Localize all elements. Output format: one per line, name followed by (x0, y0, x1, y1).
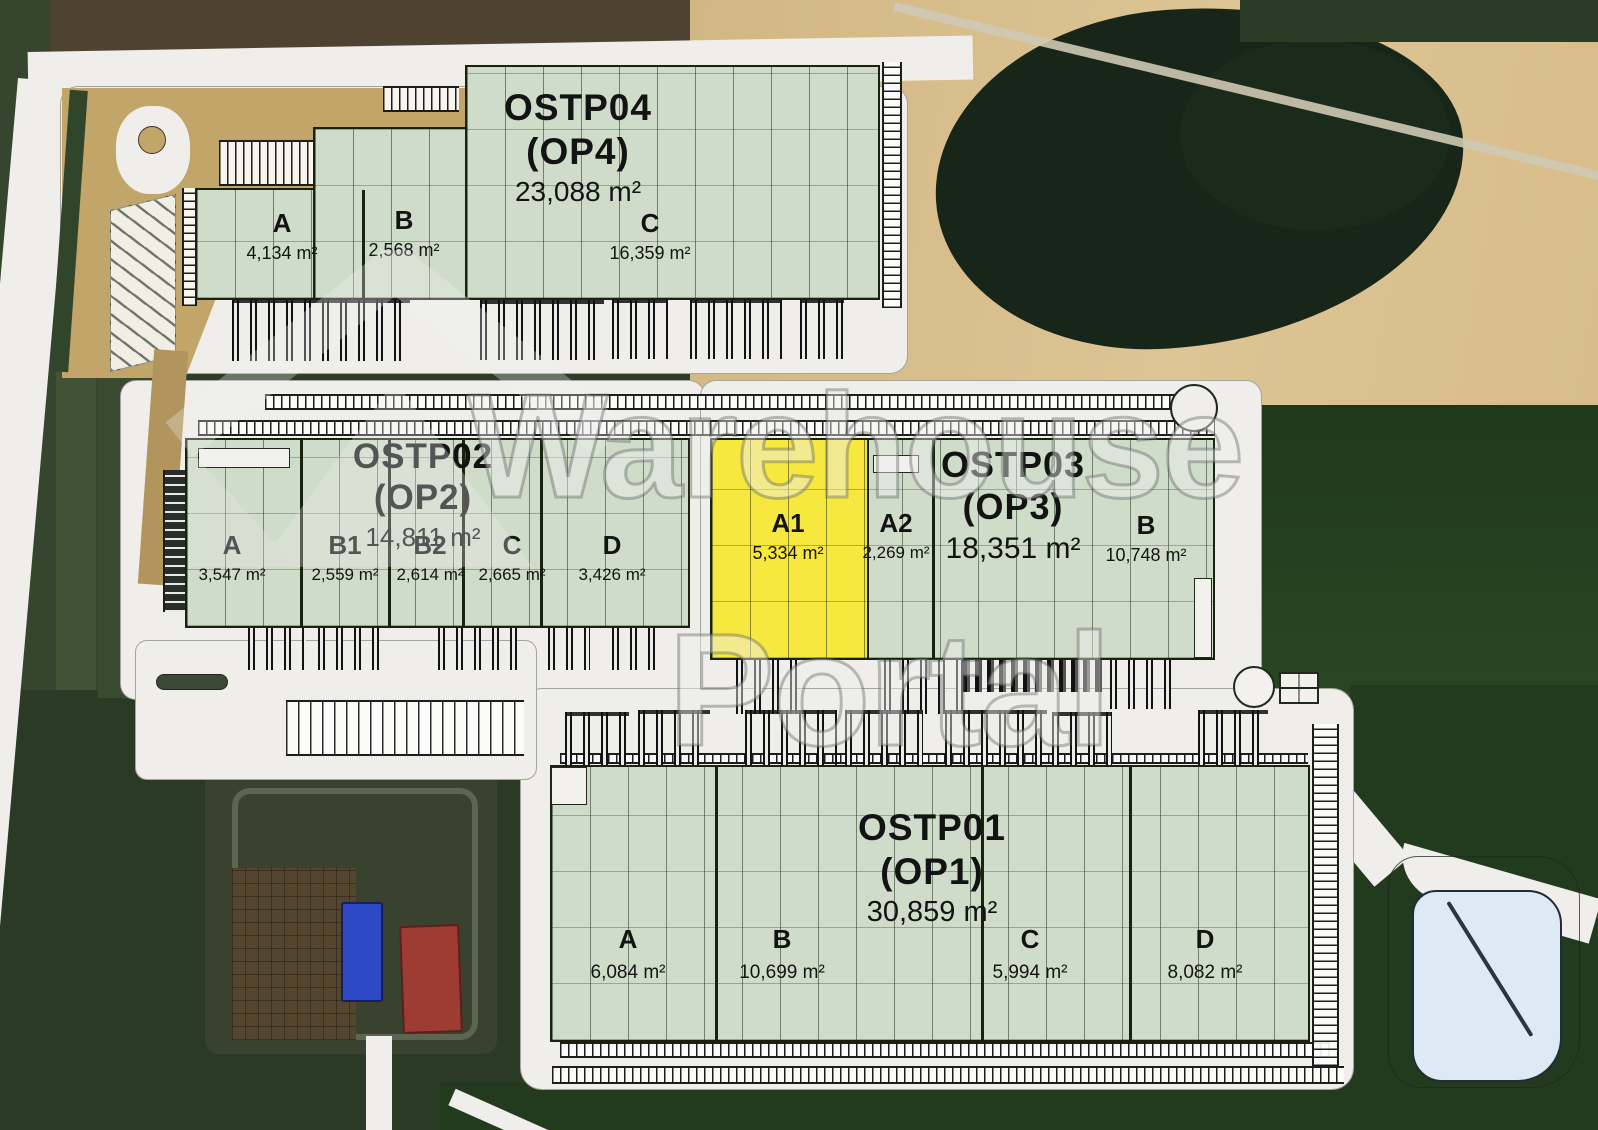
substation-red-building (399, 924, 463, 1034)
truck-row (690, 299, 782, 359)
watermark-line-1: Warehouse (468, 362, 1242, 532)
truck-row (565, 712, 629, 766)
building-title-ostp01: OSTP01 (OP1) 30,859 m² (752, 806, 1112, 929)
parcel-circle (138, 126, 166, 154)
section-label[interactable]: C 5,994 m² (993, 926, 1068, 984)
parking-stalls (552, 1066, 1344, 1084)
parking-stalls (882, 62, 902, 308)
building-code: (OP1) (752, 850, 1112, 894)
water-tank (1233, 666, 1275, 708)
section-label[interactable]: A 6,084 m² (591, 926, 666, 984)
parking-stalls (1312, 724, 1339, 1066)
building-name: OSTP04 (398, 86, 758, 130)
watermark-line-2: Portal (668, 598, 1109, 782)
parking-island (156, 674, 228, 690)
substation-blue-building (341, 902, 383, 1002)
retention-pond (1412, 890, 1562, 1082)
interior-room (551, 767, 587, 805)
dock-stalls (219, 140, 313, 186)
section-divider (1129, 767, 1132, 1040)
trees-top-right (1240, 0, 1598, 42)
section-label[interactable]: B 10,699 m² (739, 926, 825, 984)
substation-gravel-grid (232, 868, 356, 1040)
section-label[interactable]: D 8,082 m² (1168, 926, 1243, 984)
site-plan-canvas: OSTP04 (OP4) 23,088 m² A 4,134 m² B 2,56… (0, 0, 1598, 1130)
building-code: (OP4) (398, 130, 758, 174)
building-title-ostp04: OSTP04 (OP4) 23,088 m² (398, 86, 758, 208)
building-name: OSTP01 (752, 806, 1112, 850)
section-divider (715, 767, 718, 1040)
truck-row (800, 299, 844, 359)
interior-room (1194, 578, 1212, 658)
truck-row (1198, 710, 1268, 768)
car-parking-west (286, 700, 524, 756)
road-substation-stub (366, 1036, 392, 1130)
pump-house (1279, 672, 1319, 704)
building-total-area: 23,088 m² (398, 176, 758, 208)
building-total-area: 30,859 m² (752, 896, 1112, 929)
parking-stalls (560, 1042, 1330, 1058)
